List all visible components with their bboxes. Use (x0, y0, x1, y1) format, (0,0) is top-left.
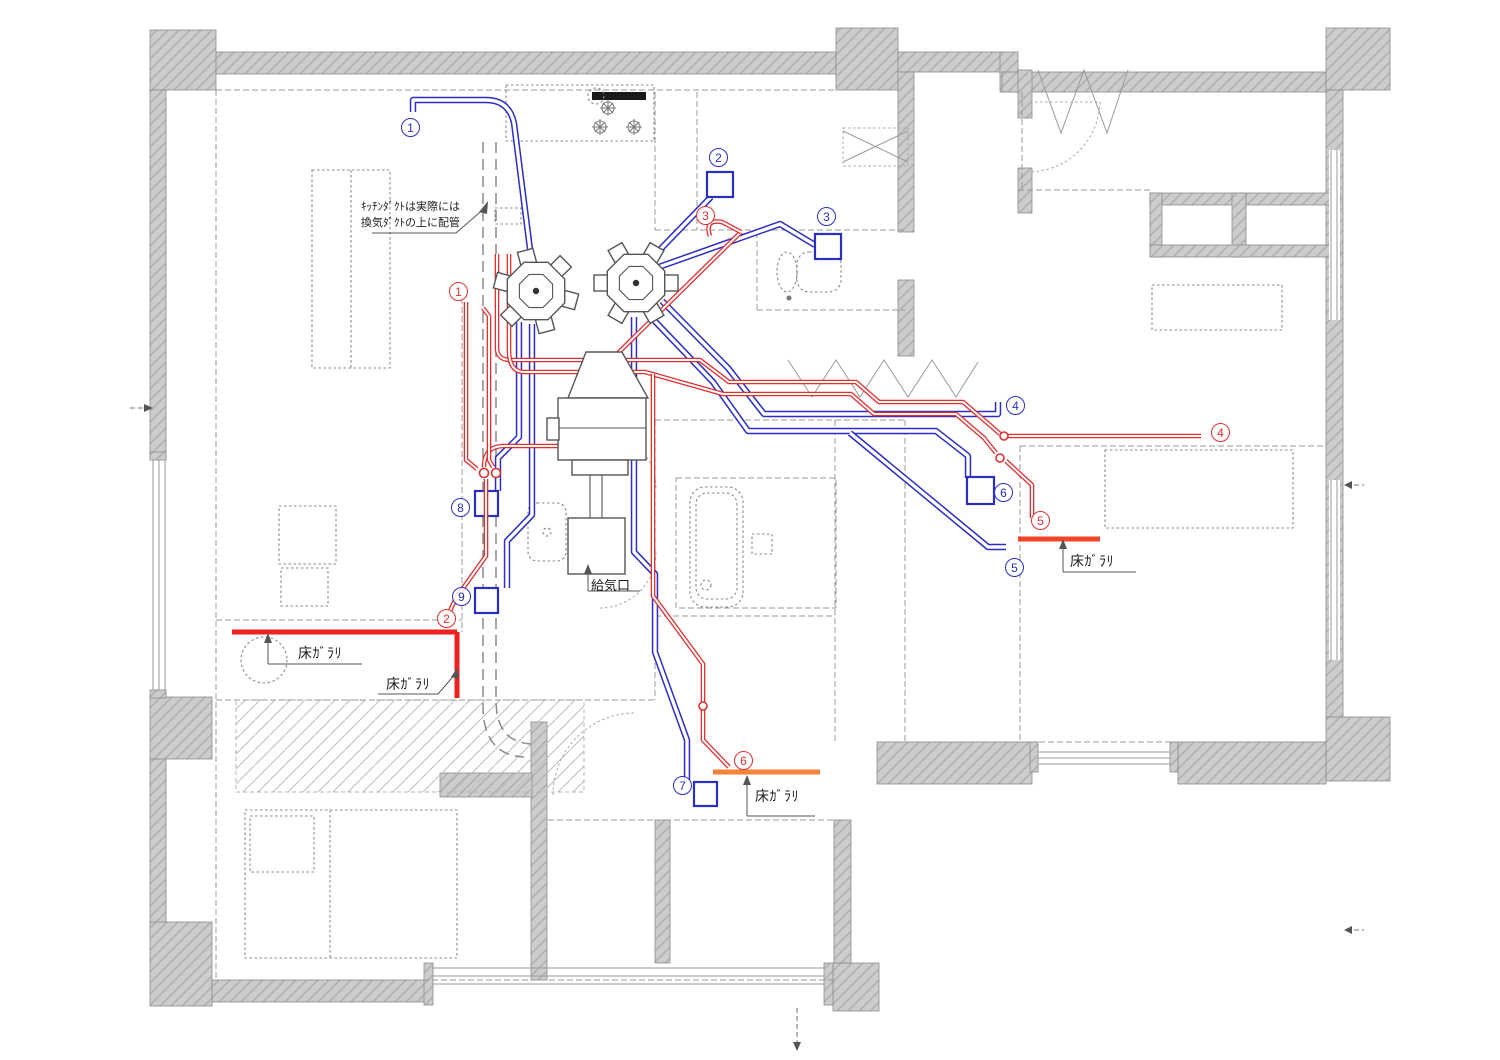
duct-junction (996, 454, 1004, 462)
duct-marker-blue-8: 8 (451, 498, 470, 517)
duct-manifold-right (594, 243, 678, 324)
duct-outlet-6 (967, 477, 994, 504)
duct-marker-blue-5: 5 (1005, 558, 1024, 577)
duct-junction (1000, 432, 1008, 440)
duct-marker-red-1: 1 (449, 282, 468, 301)
kitchen-duct-note-line2: 換気ﾀﾞｸﾄの上に配管 (326, 215, 460, 231)
duct-marker-red-2: 2 (437, 609, 456, 628)
duct-marker-blue-6: 6 (994, 483, 1013, 502)
duct-marker-red-6: 6 (734, 751, 753, 770)
duct-manifold-left (493, 248, 578, 333)
supply-air-label: 給気口 (591, 575, 630, 594)
floor-grille-label-bottom: 床ｶﾞﾗﾘ (755, 786, 799, 806)
duct-outlet-2 (707, 172, 733, 197)
duct-marker-blue-9: 9 (452, 587, 471, 606)
duct-outlet-9 (475, 588, 498, 613)
floor-grille-label-left-1: 床ｶﾞﾗﾘ (298, 643, 342, 663)
range-hood (592, 92, 646, 100)
duct-junction (480, 469, 489, 478)
balcony-hatch (236, 700, 584, 792)
duct-marker-red-4: 4 (1211, 423, 1230, 442)
floor-grille-label-right: 床ｶﾞﾗﾘ (1070, 551, 1114, 571)
duct-marker-blue-7: 7 (673, 776, 692, 795)
duct-marker-red-3: 3 (696, 206, 715, 225)
supply-air-box (568, 518, 625, 574)
duct-marker-red-5: 5 (1031, 511, 1050, 530)
kitchen-duct-note: ｷｯﾁﾝﾀﾞｸﾄは実際には 換気ﾀﾞｸﾄの上に配管 (326, 199, 460, 231)
duct-marker-blue-2: 2 (709, 148, 728, 167)
duct-marker-blue-1: 1 (401, 118, 420, 137)
stove-burners (592, 100, 642, 135)
duct-marker-blue-4: 4 (1006, 396, 1025, 415)
duct-outlet-7 (694, 782, 717, 806)
duct-junction (699, 702, 707, 710)
duct-outlet-3 (815, 234, 841, 259)
floor-grille-label-left-2: 床ｶﾞﾗﾘ (386, 674, 430, 694)
duct-junction (492, 469, 501, 478)
plan-drawing (0, 0, 1500, 1060)
duct-marker-blue-3: 3 (817, 207, 836, 226)
floor-plan-canvas: ｷｯﾁﾝﾀﾞｸﾄは実際には 換気ﾀﾞｸﾄの上に配管 床ｶﾞﾗﾘ 床ｶﾞﾗﾘ 床ｶ… (0, 0, 1500, 1060)
kitchen-duct-note-line1: ｷｯﾁﾝﾀﾞｸﾄは実際には (326, 199, 460, 215)
